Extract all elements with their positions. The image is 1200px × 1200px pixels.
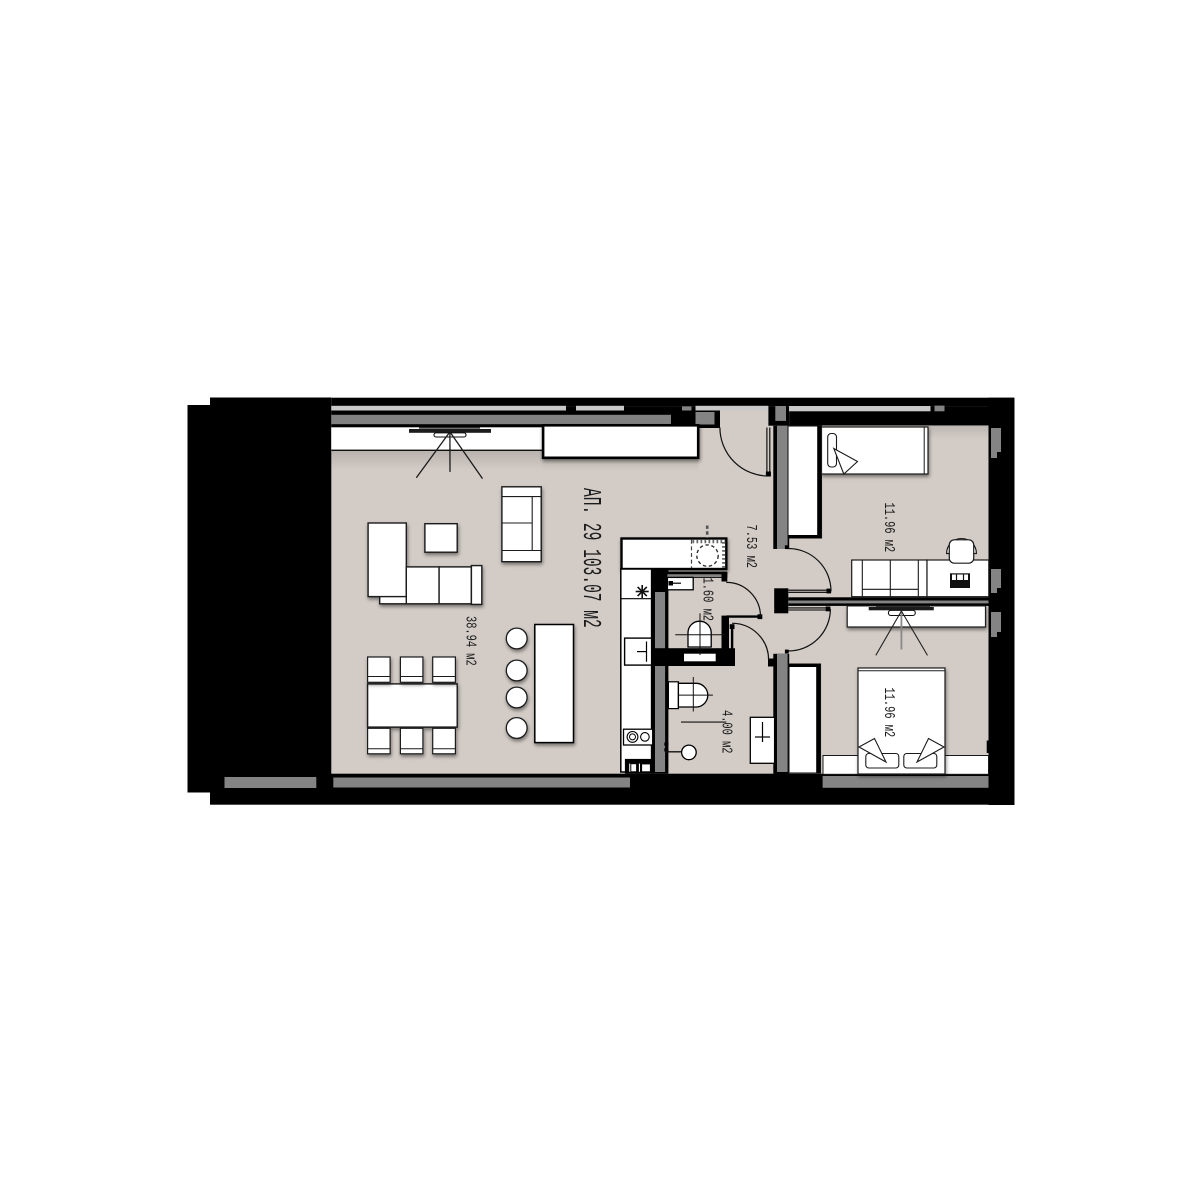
svg-text:АП. 29 103.07 м2: АП. 29 103.07 м2 <box>575 488 605 628</box>
svg-text:4.00 м2: 4.00 м2 <box>718 710 735 754</box>
svg-text:11.96 м2: 11.96 м2 <box>880 688 897 738</box>
svg-text:11.96 м2: 11.96 м2 <box>880 503 897 553</box>
svg-text:7.53 м2: 7.53 м2 <box>742 525 759 569</box>
svg-text:1.60 м2: 1.60 м2 <box>699 578 716 622</box>
svg-text:38.94 м2: 38.94 м2 <box>462 616 479 666</box>
